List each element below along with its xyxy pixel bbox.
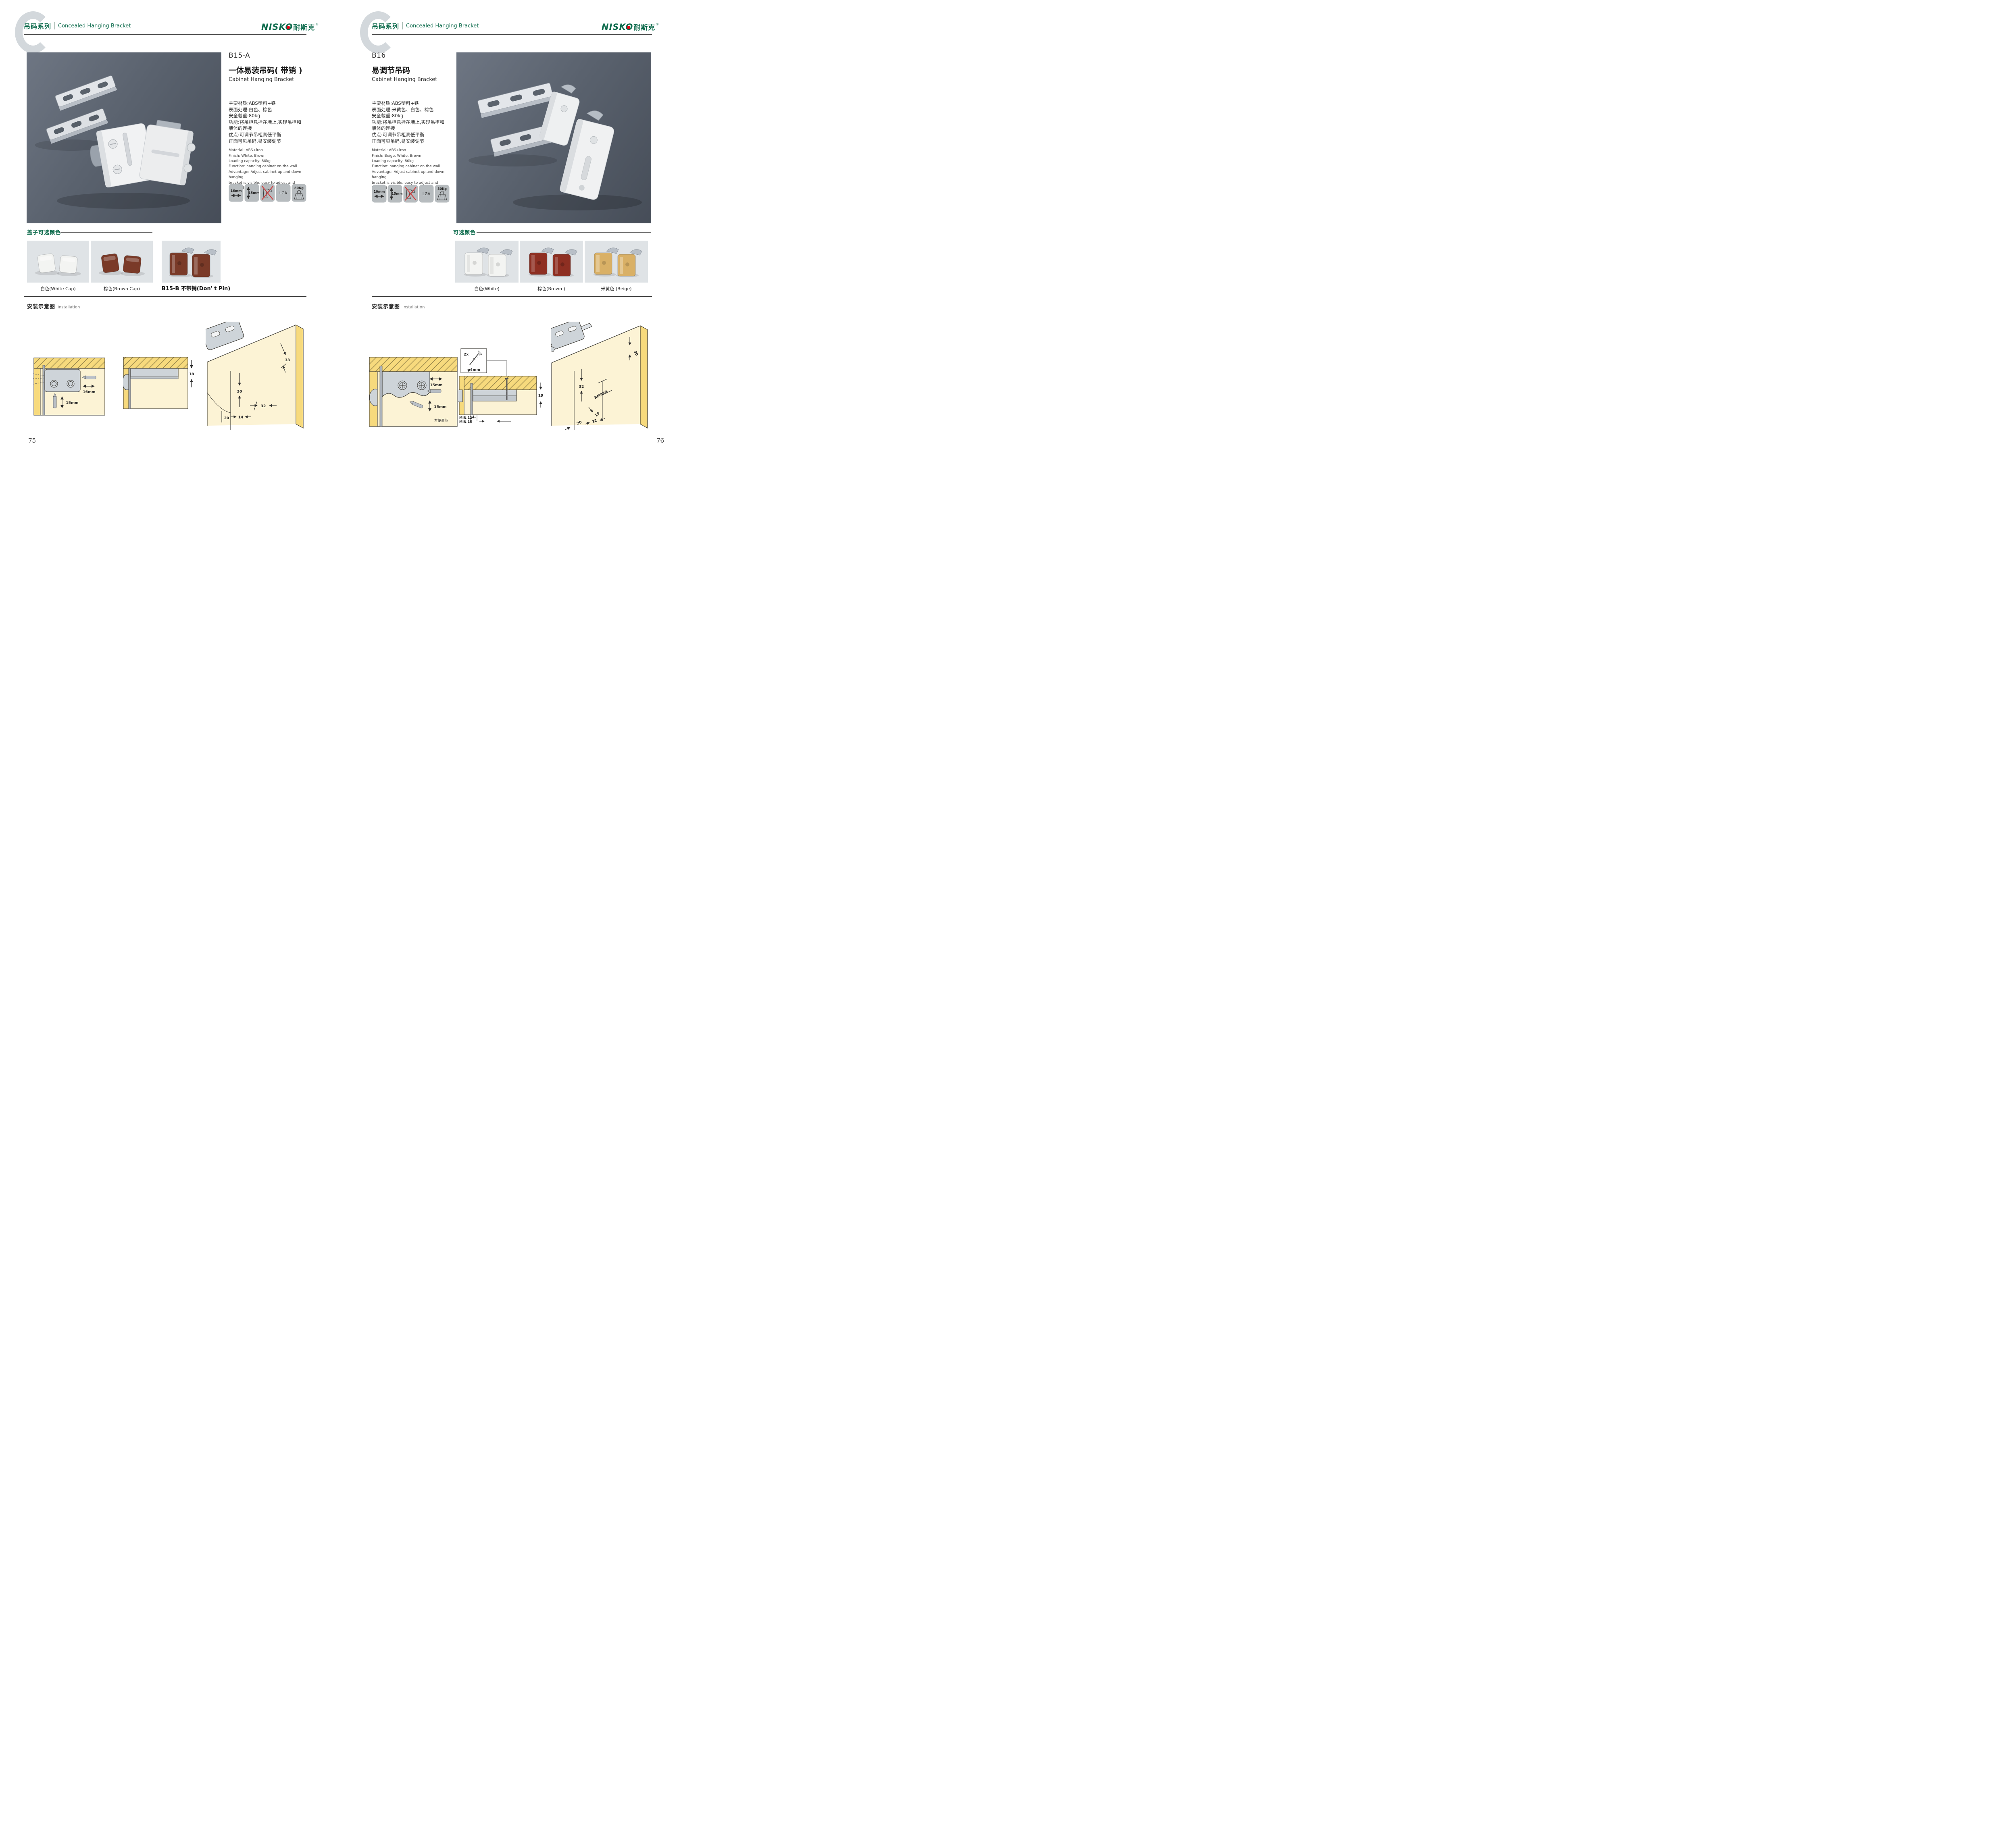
color-swatch-beige [585,241,648,284]
color-label: 米黄色 (Beige) [585,285,648,292]
spec-line: Loading capacity: 80kg [229,159,309,164]
color-label-b15b: B15-B 不带销(Don' t Pin) [162,284,230,292]
spec-line: 正面可见吊码,易安装调节 [229,138,309,145]
bracket-back-render [139,119,199,186]
series-title-cn: 吊码系列 [24,21,51,31]
brand-registered-mark: ® [656,23,659,26]
brand-logo-cn: 耐斯克 [633,22,655,32]
spec-line: Function: hanging cabinet on the wall [229,164,309,169]
installation-heading-right: 安装示意图 Installation [372,302,425,310]
spec-line: 表面处理:米黄色、白色、棕色 [372,107,454,113]
series-title-cn: 吊码系列 [372,21,399,31]
product-code: B16 [372,52,454,60]
page-number-left: 75 [28,437,36,444]
svg-text:33: 33 [285,358,290,362]
spec-line: 墙体的连接 [372,125,454,132]
series-c-watermark [360,11,396,53]
feature-icons-b15a: 16mm 15mm LGA 80Kg [229,184,306,202]
brand-registered-mark: ® [315,23,319,26]
lga-cert-icon: LGA [419,185,434,203]
brand-logo-red-dot-icon [287,26,290,29]
product-photo-b16-render [456,52,651,223]
spec-line: Function: hanging cabinet on the wall [372,164,454,169]
height-dimension-icon: 15mm [244,184,259,202]
spec-line: Material: ABS+iron [372,148,454,153]
svg-text:15mm: 15mm [430,383,442,387]
svg-text:2x: 2x [464,353,469,357]
spec-line: 优点:可调节吊柜高低平衡 [372,132,454,138]
no-drill-icon [260,184,275,202]
color-label: 棕色(Brown ) [520,285,583,292]
svg-text:20: 20 [224,416,229,420]
spec-line: 主要材质:ABS塑料+铁 [229,100,309,107]
cap-colors-heading: 盖子可选颜色 [27,228,61,236]
spec-line: 优点:可调节吊柜高低平衡 [229,132,309,138]
width-dimension-icon: 16mm [229,184,244,202]
lga-cert-icon: LGA [276,184,291,202]
color-label: 棕色(Brown Cap) [91,285,153,292]
product-name-cn: 易调节吊码 [372,64,454,75]
installation-title-en: Installation [402,305,425,310]
spec-line: 表面处理:白色、棕色 [229,107,309,113]
product-photo-b16 [456,52,651,223]
brand-logo-right: NISKO 耐斯克 ® [602,22,659,32]
brand-logo-red-dot-icon [627,26,630,29]
product-name-cn: 一体易装吊码( 带销 ) [229,64,309,75]
cap-colors-rule [60,232,152,233]
spec-line: Loading capacity: 80kg [372,159,454,164]
svg-text:16mm: 16mm [83,390,95,394]
product-name-en: Cabinet Hanging Bracket [372,77,454,83]
series-title-en: Concealed Hanging Bracket [58,23,131,29]
svg-text:方便调节: 方便调节 [434,418,448,423]
svg-text:16mm: 16mm [231,189,242,193]
spec-line: Advantage: Adjust cabinet up and down ha… [372,170,454,181]
wall-rail-render [477,83,554,118]
no-drill-icon [403,185,418,203]
installation-diagram-right-2: 2x φ4mm 19 [458,348,544,425]
spec-line: Material: ABS+iron [229,148,309,153]
spec-line: 墙体的连接 [229,125,309,132]
feature-icons-b16: 10mm 15mm LGA 80Kg [372,185,450,203]
load-capacity-icon: 80Kg [292,184,306,202]
color-swatch-brown [520,241,583,284]
svg-text:19: 19 [538,394,544,398]
installation-diagram-left-2: 18 [123,357,195,411]
color-swatch-brown-cap [91,241,153,284]
colors-rule [477,232,651,233]
svg-text:MIN.12: MIN.12 [459,416,472,420]
product-photo-b15a-render [27,52,221,223]
series-c-watermark [15,11,51,53]
page-number-right: 76 [656,437,664,444]
height-dimension-icon: 15mm [387,185,402,203]
wall-rail-render [55,75,117,111]
spec-line: 功能:将吊柜悬挂在墙上,实现吊柜和 [372,119,454,126]
series-header-left: 吊码系列 Concealed Hanging Bracket [24,21,131,31]
svg-text:30: 30 [237,390,242,394]
svg-text:14: 14 [238,416,244,420]
installation-title-cn: 安装示意图 [27,302,55,310]
installation-title-en: Installation [58,305,80,310]
header-rule-left [24,34,306,35]
installation-diagram-right-3: 30 32 RMAX4 19 20 32 [551,322,652,432]
brand-logo-left: NISKO 耐斯克 ® [261,22,319,32]
svg-text:32: 32 [261,404,266,408]
spec-line: 安全载重:80kg [372,113,454,119]
spec-line: 安全载重:80kg [229,113,309,119]
installation-heading-left: 安装示意图 Installation [27,302,80,310]
svg-text:φ4mm: φ4mm [467,368,480,372]
svg-text:10mm: 10mm [374,190,385,193]
spec-line: Advantage: Adjust cabinet up and down ha… [229,170,309,181]
section-rule-left [24,296,306,297]
product-info-b15a: B15-A 一体易装吊码( 带销 ) Cabinet Hanging Brack… [229,52,309,191]
color-swatch-white [455,241,519,284]
width-dimension-icon: 10mm [372,185,387,203]
catalog-spread: 吊码系列 Concealed Hanging Bracket NISKO 耐斯克… [0,0,676,462]
product-code: B15-A [229,52,309,60]
svg-text:15mm: 15mm [248,191,259,195]
installation-diagram-left-1: 16mm 15mm [33,355,106,418]
series-separator [402,22,403,29]
color-swatch-b15b [162,241,221,284]
svg-text:LGA: LGA [423,192,431,196]
header-rule-right [372,34,652,35]
spec-line: Finish: White, Brown [229,154,309,159]
svg-text:LGA: LGA [279,191,287,196]
spec-line: 主要材质:ABS塑料+铁 [372,100,454,107]
color-label: 白色(White) [455,285,519,292]
load-capacity-icon: 80Kg [435,185,450,203]
svg-text:15mm: 15mm [434,405,446,409]
spec-line: 功能:将吊柜悬挂在墙上,实现吊柜和 [229,119,309,126]
svg-text:15mm: 15mm [392,192,402,196]
installation-title-cn: 安装示意图 [372,302,400,310]
series-separator [54,22,55,29]
colors-heading: 可选颜色 [453,228,476,236]
section-rule-right [372,296,652,297]
product-specs-cn: 主要材质:ABS塑料+铁 表面处理:米黄色、白色、棕色 安全载重:80kg 功能… [372,100,454,144]
svg-text:80Kg: 80Kg [437,187,447,191]
svg-text:32: 32 [579,385,584,389]
spec-line: Finish: Beige, White, Brown [372,154,454,159]
product-specs-cn: 主要材质:ABS塑料+铁 表面处理:白色、棕色 安全载重:80kg 功能:将吊柜… [229,100,309,144]
svg-text:MIN.15: MIN.15 [459,420,472,423]
svg-text:18: 18 [189,372,194,376]
series-title-en: Concealed Hanging Bracket [406,23,479,29]
svg-text:15mm: 15mm [66,401,78,405]
color-swatch-white-cap [27,241,89,284]
series-header-right: 吊码系列 Concealed Hanging Bracket [372,21,479,31]
brand-logo-cn: 耐斯克 [293,22,315,32]
installation-diagram-right-1: 15mm 15mm 方便调节 [369,355,458,429]
spec-line: 正面可见吊码,易安装调节 [372,138,454,145]
product-photo-b15a [27,52,221,223]
color-label: 白色(White Cap) [27,285,89,292]
product-info-b16: B16 易调节吊码 Cabinet Hanging Bracket 主要材质:A… [372,52,454,191]
installation-diagram-left-3: 33 30 32 20 14 [206,322,307,432]
svg-text:80Kg: 80Kg [294,186,304,190]
product-name-en: Cabinet Hanging Bracket [229,77,309,83]
